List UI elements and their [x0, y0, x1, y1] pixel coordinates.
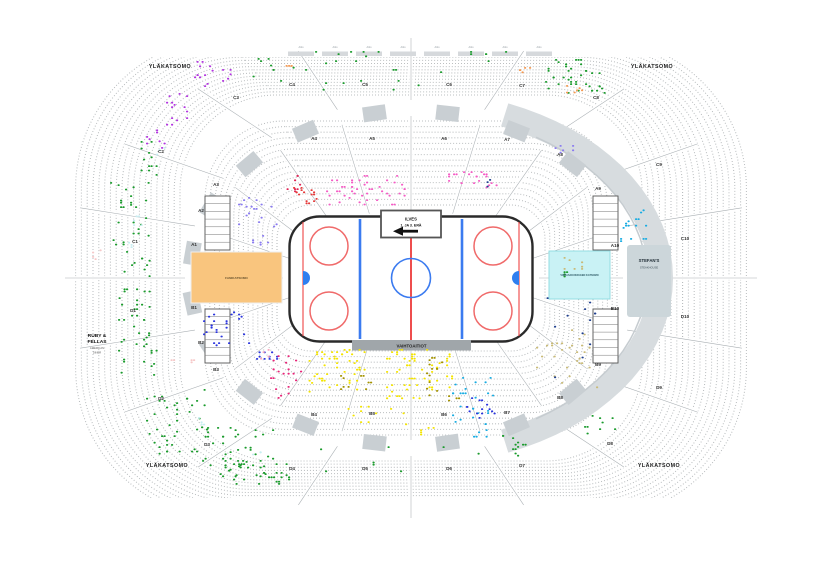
section-label-D2[interactable]: D2 [158, 396, 164, 401]
seat-cluster-green[interactable] [589, 72, 606, 94]
suite-label: Aitio [468, 45, 474, 49]
section-label-B1[interactable]: B1 [191, 305, 197, 310]
section-label-D9[interactable]: D9 [656, 385, 662, 390]
seat-cluster-orange[interactable] [519, 67, 531, 73]
section-label-D3[interactable]: D3 [204, 442, 210, 447]
section-label-A5[interactable]: A5 [369, 136, 375, 141]
suite-bar[interactable] [526, 52, 552, 57]
seat-cluster-purple[interactable] [146, 129, 166, 148]
section-label-C9[interactable]: C9 [656, 162, 662, 167]
section-label-A8[interactable]: A8 [557, 152, 563, 157]
section-label-C4[interactable]: C4 [289, 82, 295, 87]
restaurant-left-line2: FELLAS [87, 339, 107, 345]
suite-bar[interactable] [288, 52, 314, 57]
section-label-A7[interactable]: A7 [504, 137, 510, 142]
restaurant-left-line1: RUBY & [88, 333, 107, 339]
section-label-B2[interactable]: B2 [198, 340, 204, 345]
section-label-C5[interactable]: C5 [362, 82, 368, 87]
section-label-B10[interactable]: B10 [611, 306, 620, 311]
attack-arrow-icon [403, 230, 418, 233]
suite-label: Aitio [298, 45, 304, 49]
suite-label: Aitio [366, 45, 372, 49]
restaurant-panel [627, 245, 671, 317]
section-label-A4[interactable]: A4 [311, 136, 317, 141]
section-label-A3[interactable]: A3 [213, 182, 219, 187]
seat-cluster-green[interactable] [320, 446, 480, 472]
section-label-C3[interactable]: C3 [233, 95, 239, 100]
corner-label-2: YLÄKATSOMO [146, 462, 188, 469]
suite-label: Aitio [434, 45, 440, 49]
seat-cluster-cyan[interactable] [452, 377, 494, 425]
suite-label: Aitio [536, 45, 542, 49]
section-label-A6[interactable]: A6 [441, 136, 447, 141]
arena-map-svg: AitioAitioAitioAitioAitioAitioAitioAitio… [0, 0, 823, 569]
seat-cluster-yellow[interactable] [420, 427, 435, 435]
suite-bar[interactable] [390, 52, 416, 57]
ice-rink [290, 211, 533, 351]
section-label-D7[interactable]: D7 [519, 463, 525, 468]
section-label-B3[interactable]: B3 [213, 367, 219, 372]
seat-cluster-green[interactable] [228, 461, 290, 485]
suite-label: Aitio [400, 45, 406, 49]
section-label-B4[interactable]: B4 [311, 412, 317, 417]
seat-cluster-purple[interactable] [222, 69, 232, 82]
corner-label-3: YLÄKATSOMO [638, 462, 680, 469]
attack-box-line1: ILVES [405, 217, 417, 222]
section-label-D4[interactable]: D4 [289, 466, 295, 471]
seat-cluster-yellow[interactable] [348, 397, 415, 425]
seat-cluster-green[interactable] [119, 251, 151, 317]
section-label-D8[interactable]: D8 [607, 441, 613, 446]
suite-label: Aitio [502, 45, 508, 49]
restaurant-left-sub2: DINER [93, 351, 101, 355]
away-stand-label: VIERASJOUKKUEEN KATSOMO [560, 274, 598, 277]
section-label-B7[interactable]: B7 [504, 410, 510, 415]
seat-cluster-cyanpale[interactable] [252, 451, 262, 455]
section-label-B9[interactable]: B9 [595, 362, 601, 367]
seat-cluster-violet[interactable] [238, 197, 278, 227]
restaurant-left-sub1: AMERICAN [90, 346, 104, 350]
corner-label-1: YLÄKATSOMO [631, 63, 673, 70]
section-label-A10[interactable]: A10 [611, 243, 620, 248]
suite-bar[interactable] [424, 52, 450, 57]
seat-cluster-cyanpale[interactable] [198, 417, 205, 425]
section-label-C1[interactable]: C1 [132, 239, 138, 244]
section-label-C2[interactable]: C2 [158, 149, 164, 154]
section-label-D5[interactable]: D5 [362, 466, 368, 471]
seat-cluster-green[interactable] [141, 141, 158, 176]
seat-cluster-green[interactable] [545, 59, 587, 94]
section-label-B6[interactable]: B6 [441, 412, 447, 417]
section-label-D1[interactable]: D1 [130, 308, 136, 313]
suite-bar[interactable] [322, 52, 348, 57]
seatmap: AitioAitioAitioAitioAitioAitioAitioAitio… [0, 0, 823, 569]
section-label-C10[interactable]: C10 [681, 236, 690, 241]
section-label-A2[interactable]: A2 [198, 208, 204, 213]
section-label-A9[interactable]: A9 [595, 186, 601, 191]
fan-stand-label: FANIKATSOMO [225, 276, 248, 280]
benches-label: VAIHTOAITIOT [397, 344, 427, 349]
section-label-C6[interactable]: C6 [446, 82, 452, 87]
seat-cluster-green[interactable] [584, 415, 616, 434]
restaurant-right-sub: STEAKHOUSE [640, 266, 659, 270]
seat-cluster-violet[interactable] [252, 235, 269, 246]
seat-cluster-blue[interactable] [256, 351, 278, 359]
section-label-C8[interactable]: C8 [593, 95, 599, 100]
suite-bar[interactable] [492, 52, 518, 57]
section-label-D10[interactable]: D10 [681, 314, 690, 319]
suite-label: Aitio [332, 45, 338, 49]
restaurant-right-name: STEFAN'S [639, 258, 660, 263]
section-label-B8[interactable]: B8 [557, 395, 563, 400]
section-label-C7[interactable]: C7 [519, 83, 525, 88]
seat-cluster-orange[interactable] [286, 65, 293, 67]
corner-label-0: YLÄKATSOMO [149, 63, 191, 70]
seat-cluster-pinkpale[interactable] [171, 359, 196, 363]
attack-box-line2: 1. JA 3. ERÄ [400, 224, 421, 228]
seat-cluster-green[interactable] [118, 319, 158, 376]
section-label-D6[interactable]: D6 [446, 466, 452, 471]
section-label-B5[interactable]: B5 [369, 411, 375, 416]
seat-cluster-deeppink[interactable] [270, 355, 302, 399]
section-label-A1[interactable]: A1 [191, 242, 197, 247]
